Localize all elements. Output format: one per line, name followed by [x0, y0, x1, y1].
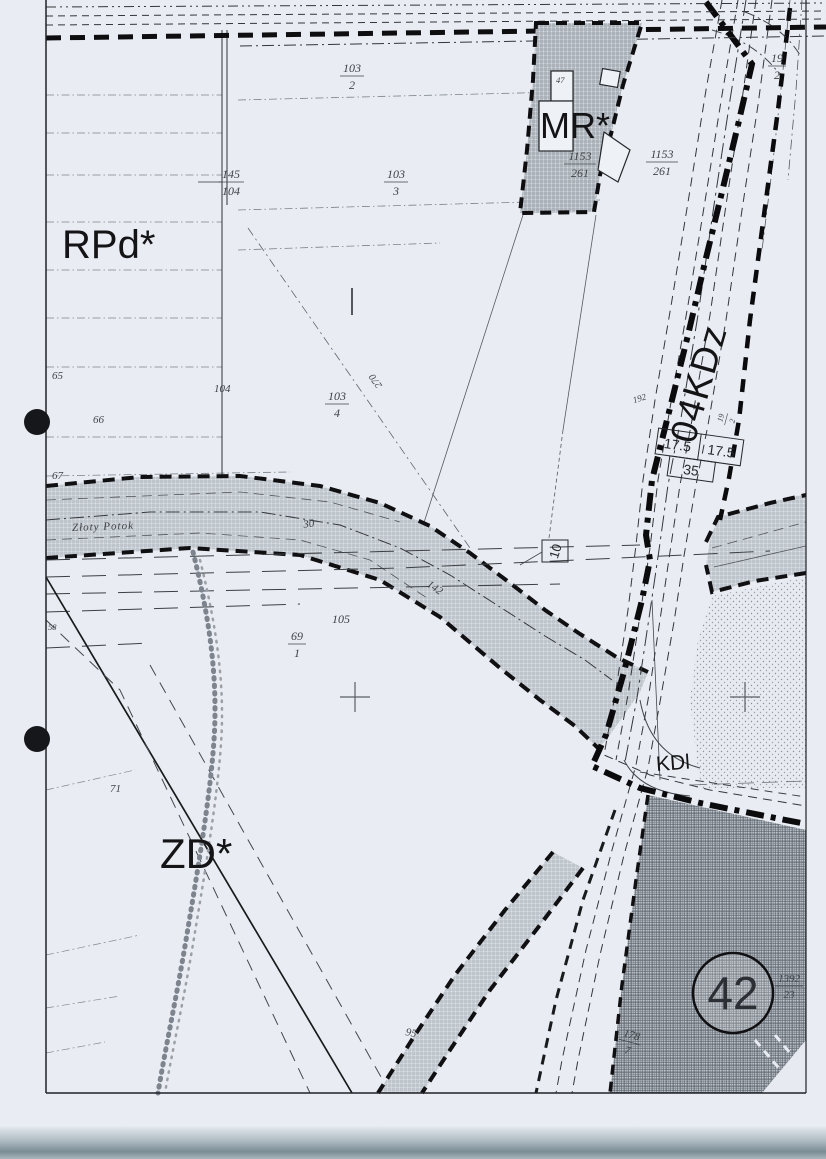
fraction-numerator: 103 — [343, 61, 361, 75]
fraction-denominator: 2 — [349, 78, 355, 92]
fraction-numerator: 1153 — [568, 149, 591, 163]
survey-number-67: 67 — [52, 470, 64, 482]
zone-label-rpd: RPd* — [62, 223, 155, 267]
scanner-edge-band — [0, 1126, 826, 1159]
punch-hole-top — [24, 409, 50, 435]
survey-number-65: 65 — [52, 370, 64, 382]
fraction-denominator: 1 — [294, 646, 300, 660]
stream-name-label: Złoty Potok — [72, 520, 135, 534]
survey-number-71: 71 — [110, 783, 121, 795]
fraction-denominator: 23 — [784, 989, 796, 1001]
fraction-denominator: 104 — [222, 184, 240, 198]
dimension-35: 35 — [682, 461, 700, 479]
fraction-numerator: 145 — [222, 167, 240, 181]
plan-sheet-number-text: 42 — [707, 967, 758, 1019]
survey-number-105: 105 — [332, 612, 350, 626]
fraction-denominator: 2 — [774, 68, 780, 82]
fraction-numerator: 19 — [771, 51, 783, 65]
survey-number-30: 30 — [302, 517, 316, 531]
scanned-zoning-map-page: 17.5 17.5 35 10 RPd* MR* ZD* 04KDz KDl 4… — [0, 0, 826, 1159]
survey-number-66: 66 — [93, 414, 105, 426]
survey-number-104: 104 — [214, 383, 231, 395]
survey-number-58: 58 — [48, 622, 57, 632]
fraction-denominator: 261 — [653, 164, 671, 178]
fraction-numerator: 69 — [291, 629, 303, 643]
survey-number-47: 47 — [556, 75, 565, 85]
fraction-numerator: 103 — [387, 167, 405, 181]
fraction-numerator: 1153 — [650, 147, 673, 161]
zone-label-zd: ZD* — [160, 830, 232, 877]
fraction-numerator: 103 — [328, 389, 346, 403]
zoning-map-canvas: 17.5 17.5 35 10 RPd* MR* ZD* 04KDz KDl 4… — [0, 0, 826, 1159]
zone-label-mr: MR* — [540, 105, 610, 146]
fraction-denominator: 4 — [334, 406, 340, 420]
punch-hole-bottom — [24, 726, 50, 752]
plan-sheet-number: 42 — [693, 953, 773, 1033]
fraction-denominator: 3 — [392, 184, 399, 198]
fraction-denominator: 261 — [571, 166, 589, 180]
zone-label-kdl: KDl — [655, 751, 690, 776]
fraction-numerator: 1392 — [778, 973, 801, 985]
